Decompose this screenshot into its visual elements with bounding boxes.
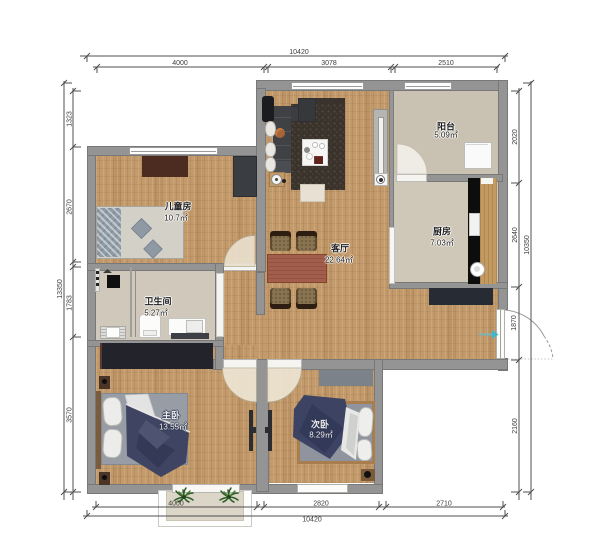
svg-text:2160: 2160: [512, 418, 519, 434]
svg-text:3570: 3570: [67, 407, 74, 423]
svg-text:1870: 1870: [511, 315, 518, 331]
svg-text:2710: 2710: [436, 501, 452, 508]
svg-text:4000: 4000: [172, 60, 188, 67]
svg-text:13350: 13350: [57, 279, 64, 299]
svg-text:10350: 10350: [524, 235, 531, 255]
svg-text:3078: 3078: [321, 60, 337, 67]
svg-text:10420: 10420: [302, 517, 322, 524]
svg-text:2020: 2020: [512, 129, 519, 145]
svg-text:4000: 4000: [168, 501, 184, 508]
svg-text:1783: 1783: [67, 295, 74, 311]
svg-text:2510: 2510: [438, 60, 454, 67]
svg-text:10420: 10420: [289, 49, 309, 56]
svg-text:1323: 1323: [67, 111, 74, 127]
svg-text:2640: 2640: [512, 227, 519, 243]
svg-text:2670: 2670: [67, 199, 74, 215]
svg-text:2820: 2820: [313, 501, 329, 508]
